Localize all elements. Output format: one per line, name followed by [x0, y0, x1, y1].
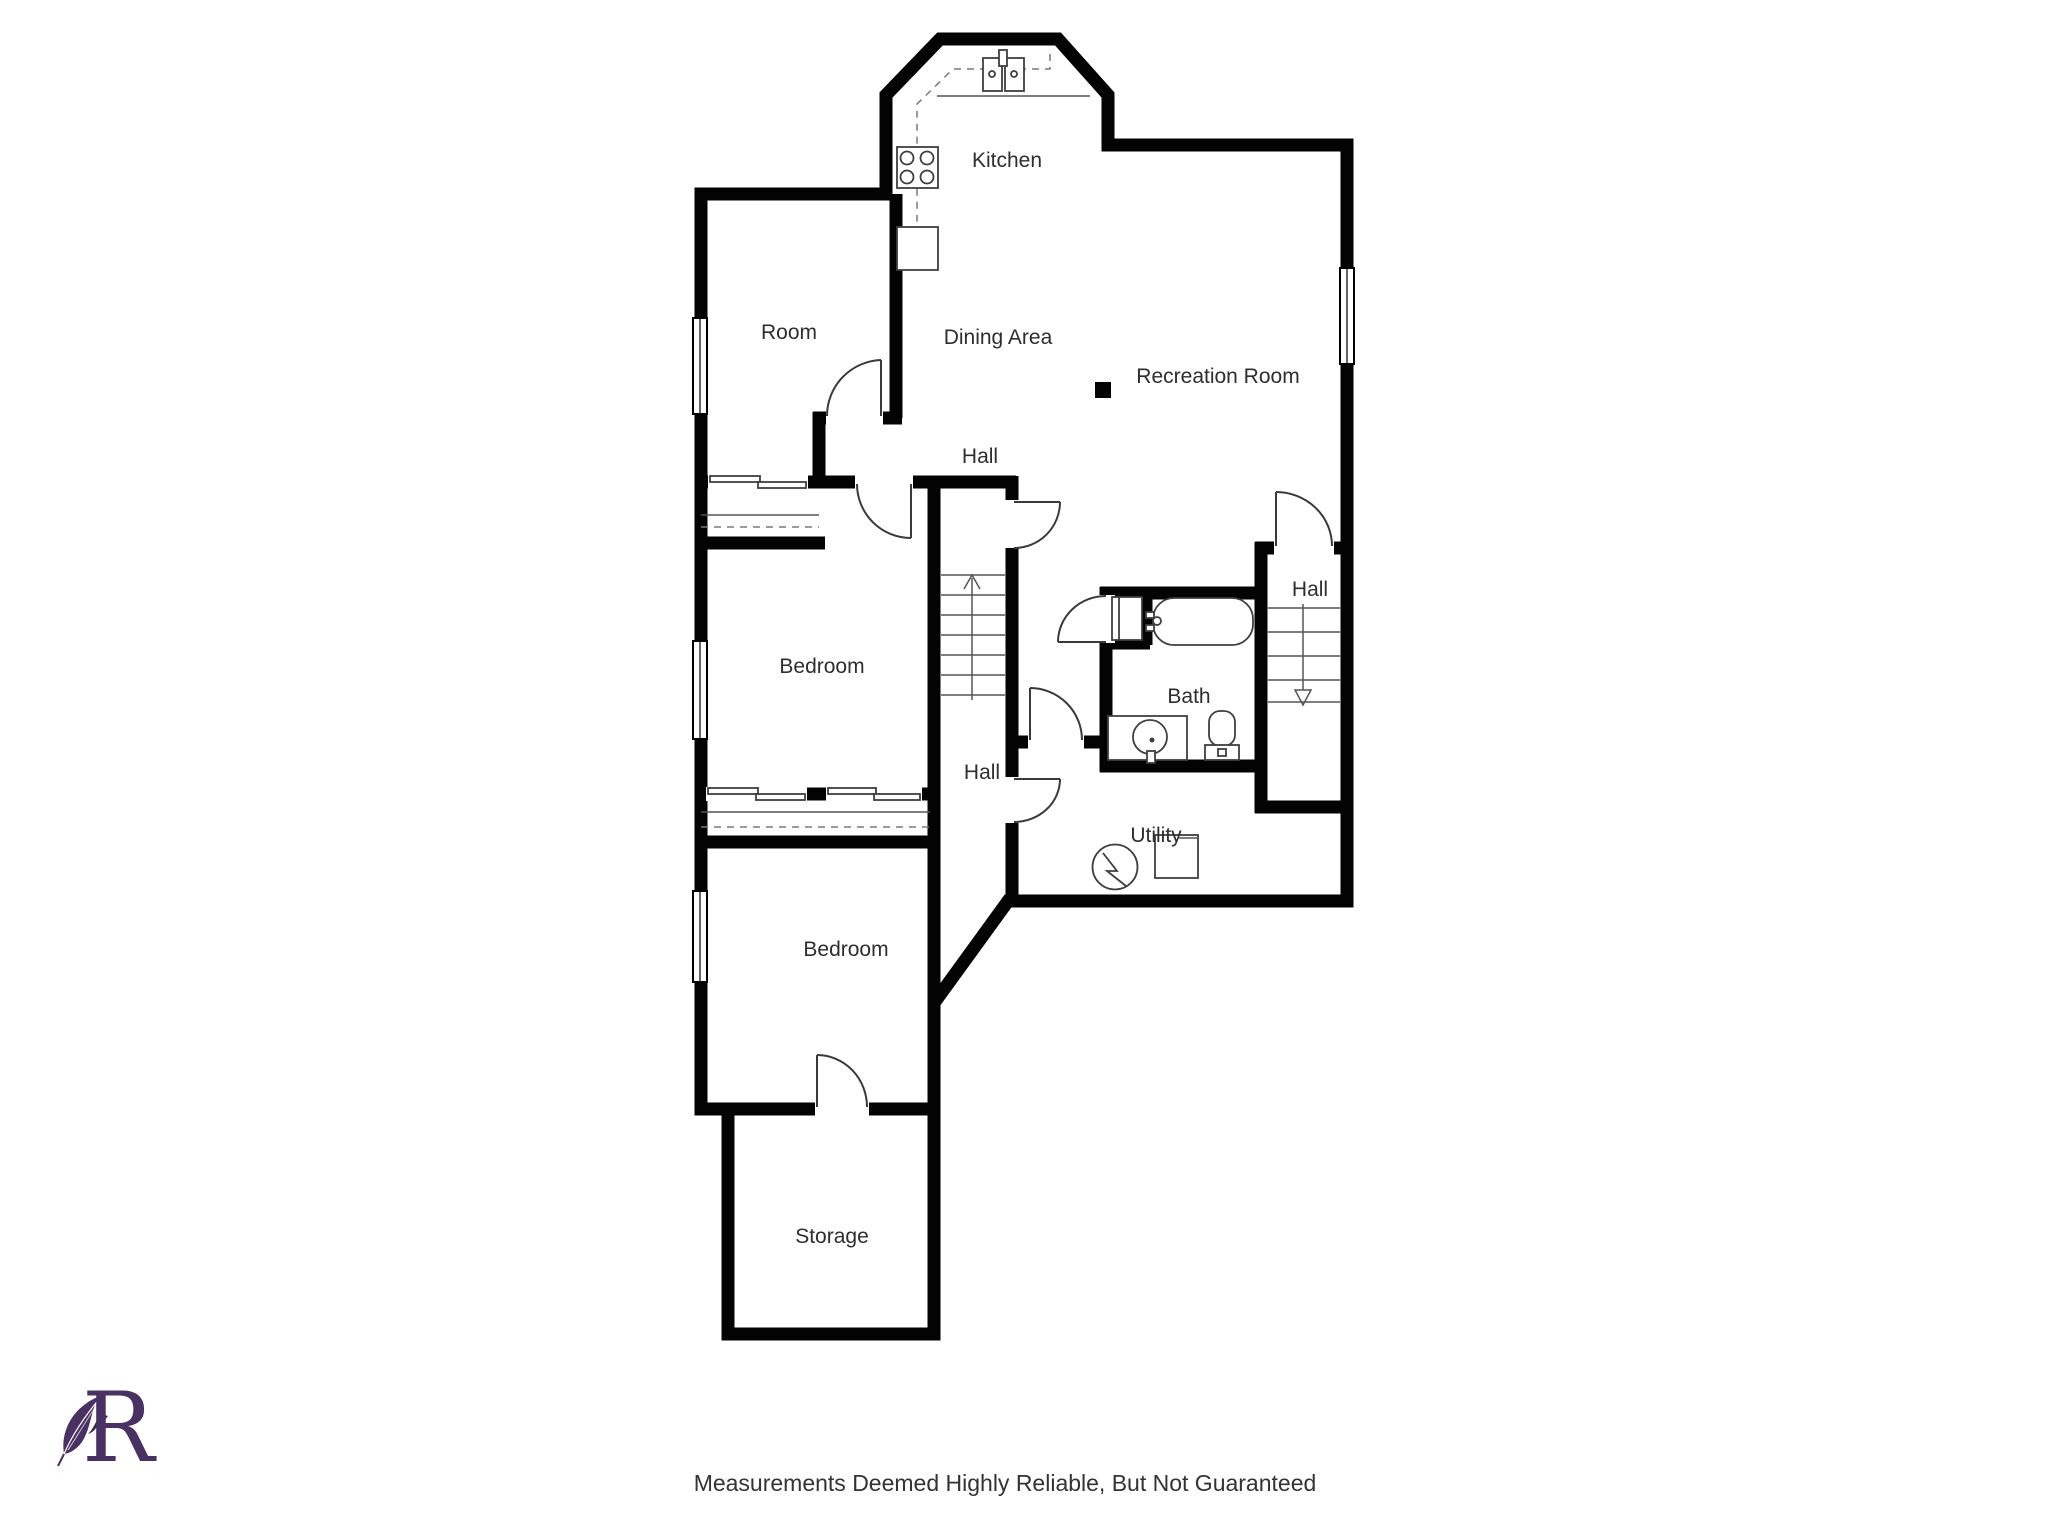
stairs-down [1268, 604, 1340, 705]
cabinet [897, 227, 938, 270]
room-label-storage: Storage [795, 1225, 869, 1248]
closet-slider [756, 794, 805, 800]
closet-slider [758, 482, 806, 488]
bath-fixtures [1108, 597, 1253, 763]
closet-slider [828, 788, 876, 794]
closet-slider [708, 788, 758, 794]
door-room [827, 360, 881, 416]
water-heater-icon [1093, 845, 1138, 890]
stove [897, 147, 938, 188]
exterior-walls [701, 39, 1347, 1334]
room-label-hall-center: Hall [964, 761, 1000, 784]
structural-post [1095, 382, 1111, 398]
window [693, 641, 707, 739]
window [1340, 268, 1354, 364]
window [693, 891, 707, 982]
vanity-sink [1108, 716, 1187, 763]
brand-logo: R [56, 1392, 206, 1522]
room-label-utility: Utility [1130, 824, 1182, 847]
bathtub [1146, 598, 1253, 645]
closets [701, 475, 930, 827]
room-label-hall-right: Hall [1292, 578, 1328, 601]
room-label-recreation: Recreation Room [1136, 365, 1299, 388]
kitchen-sink [983, 50, 1024, 91]
room-label-dining: Dining Area [944, 326, 1053, 349]
shower-cabinet [1112, 597, 1142, 640]
room-label-bedroom-lower: Bedroom [803, 938, 888, 961]
closet-slider [710, 476, 760, 482]
footer-disclaimer: Measurements Deemed Highly Reliable, But… [0, 1470, 2010, 1497]
closet-slider [874, 794, 920, 800]
door-bedroom-lower [817, 1055, 867, 1107]
room-label-room: Room [761, 321, 817, 344]
stairs-up [941, 575, 1005, 700]
room-label-kitchen: Kitchen [972, 149, 1042, 172]
logo-letter: R [82, 1380, 154, 1476]
door-corridor-to-utility [1030, 688, 1082, 740]
toilet [1205, 711, 1239, 760]
room-labels: Kitchen Dining Area Recreation Room Hall… [761, 149, 1328, 1248]
door-recreation-to-hall [1276, 492, 1332, 546]
room-label-hall-upper: Hall [962, 445, 998, 468]
floor-plan: Kitchen Dining Area Recreation Room Hall… [0, 0, 2048, 1536]
room-label-bath: Bath [1167, 685, 1210, 708]
room-label-bedroom-middle: Bedroom [779, 655, 864, 678]
window [693, 318, 707, 414]
door-bedroom-middle [857, 484, 911, 538]
